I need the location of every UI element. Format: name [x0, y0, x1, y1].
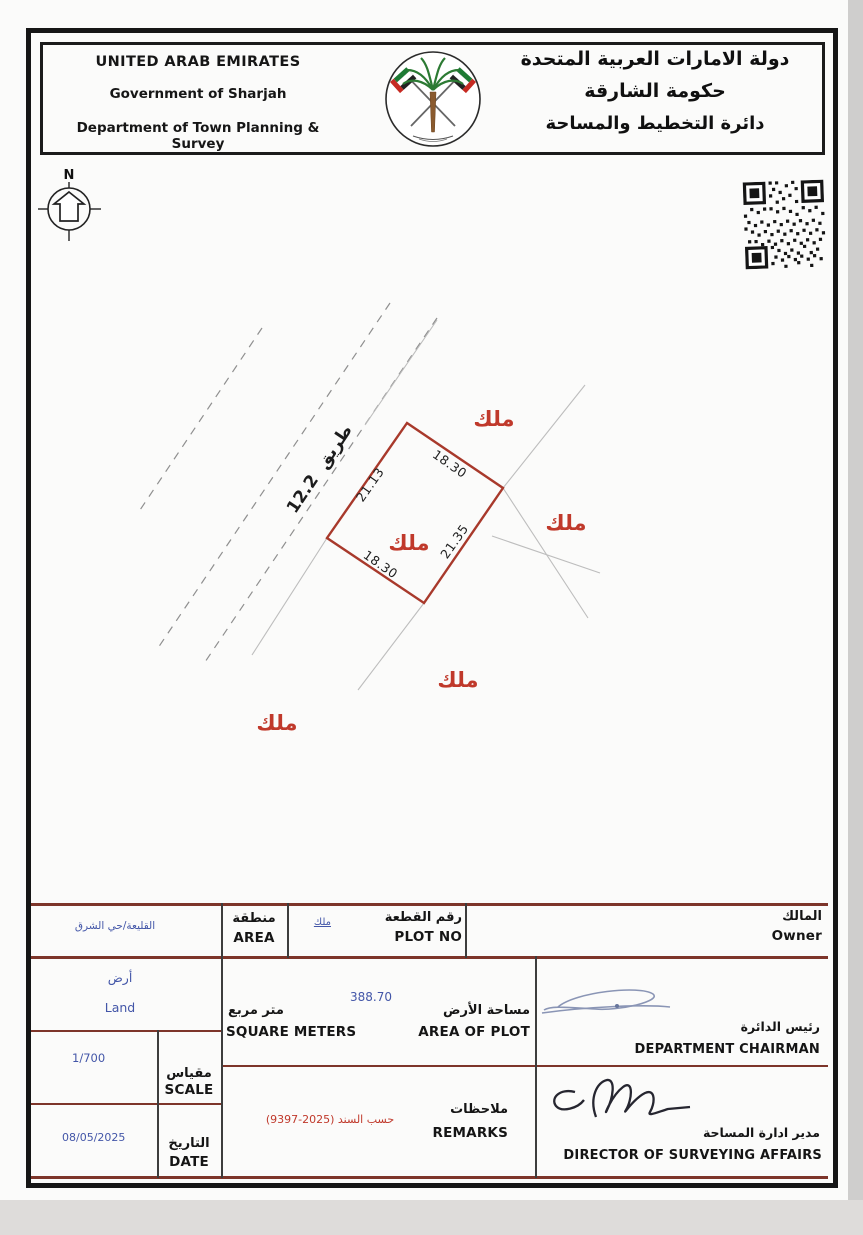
area-label-ar: منطقة	[222, 911, 286, 927]
scale-label-en: SCALE	[158, 1082, 220, 1098]
plot-no-value: ملك	[291, 917, 331, 928]
header-department-ar: دائرة التخطيط والمساحة	[495, 113, 815, 134]
remarks-value: حسب السند (2025-9397)	[250, 1113, 410, 1126]
area-of-plot-unit-ar: متر مربع	[228, 1003, 318, 1019]
header-government-en: Government of Sharjah	[48, 86, 348, 102]
area-of-plot-label-ar: مساحة الأرض	[400, 1003, 530, 1019]
table-line-middle	[222, 1065, 828, 1067]
date-value: 08/05/2025	[62, 1131, 152, 1144]
neighbor-label-right: ملك	[545, 511, 586, 535]
plot-owner-label: ملك	[388, 531, 429, 555]
area-of-plot-unit-en: SQUARE METERS	[226, 1024, 396, 1040]
table-line-land-scale	[31, 1030, 223, 1032]
header-department-en: Department of Town Planning & Survey	[48, 120, 348, 152]
plot-boundary	[327, 423, 503, 603]
scale-value: 1/700	[72, 1051, 136, 1065]
neighbor-label-bottom-left: ملك	[256, 711, 297, 735]
director-label-en: DIRECTOR OF SURVEYING AFFAIRS	[558, 1148, 822, 1164]
remarks-label-ar: ملاحظات	[420, 1102, 508, 1118]
plot-no-label-en: PLOT NO	[330, 929, 462, 945]
header-government-ar: حكومة الشارقة	[495, 80, 815, 102]
remarks-label-en: REMARKS	[420, 1125, 508, 1141]
chairman-label-ar: رئيس الدائرة	[640, 1019, 820, 1035]
scale-label-ar: مقياس	[158, 1066, 220, 1082]
neighbor-label-top: ملك	[473, 407, 514, 431]
area-label-en: AREA	[222, 930, 286, 946]
scan-edge-bottom	[0, 1200, 863, 1235]
header-country-ar: دولة الامارات العربية المتحدة	[495, 48, 815, 70]
plot-survey-drawing: طريق 12.2 18.30 21.13 21.35 18.30 ملك مل…	[0, 160, 863, 900]
area-value: القليعة/حي الشرق	[55, 920, 175, 932]
owner-label-en: Owner	[700, 928, 822, 944]
survey-document-page: UNITED ARAB EMIRATES Government of Sharj…	[0, 0, 863, 1235]
table-divider-signatures	[535, 956, 537, 1178]
date-label-ar: التاريخ	[158, 1136, 220, 1152]
chairman-label-en: DEPARTMENT CHAIRMAN	[600, 1042, 820, 1058]
table-line-bottom	[31, 1176, 828, 1179]
table-line-scale-date	[31, 1103, 223, 1105]
director-label-ar: مدير ادارة المساحة	[640, 1125, 820, 1141]
land-type-ar: أرض	[70, 970, 170, 985]
header-country-en: UNITED ARAB EMIRATES	[48, 54, 348, 70]
neighbor-label-bottom: ملك	[437, 668, 478, 692]
dimension-left: 21.13	[353, 465, 387, 505]
uae-crossed-flags-palm-emblem-icon	[383, 48, 483, 152]
table-line-top	[31, 903, 828, 906]
plot-no-label-ar: رقم القطعة	[330, 910, 462, 926]
road-label: طريق 12.2	[283, 421, 357, 517]
table-divider-area-plotno	[287, 903, 289, 958]
road-dashed-lines	[140, 303, 437, 662]
area-of-plot-label-en: AREA OF PLOT	[398, 1024, 530, 1040]
table-divider-plotno-owner	[465, 903, 467, 958]
date-label-en: DATE	[158, 1154, 220, 1170]
table-line-row1-bottom	[31, 956, 828, 959]
owner-label-ar: المالك	[700, 909, 822, 925]
land-type-en: Land	[70, 1000, 170, 1015]
area-of-plot-value: 388.70	[350, 990, 420, 1004]
